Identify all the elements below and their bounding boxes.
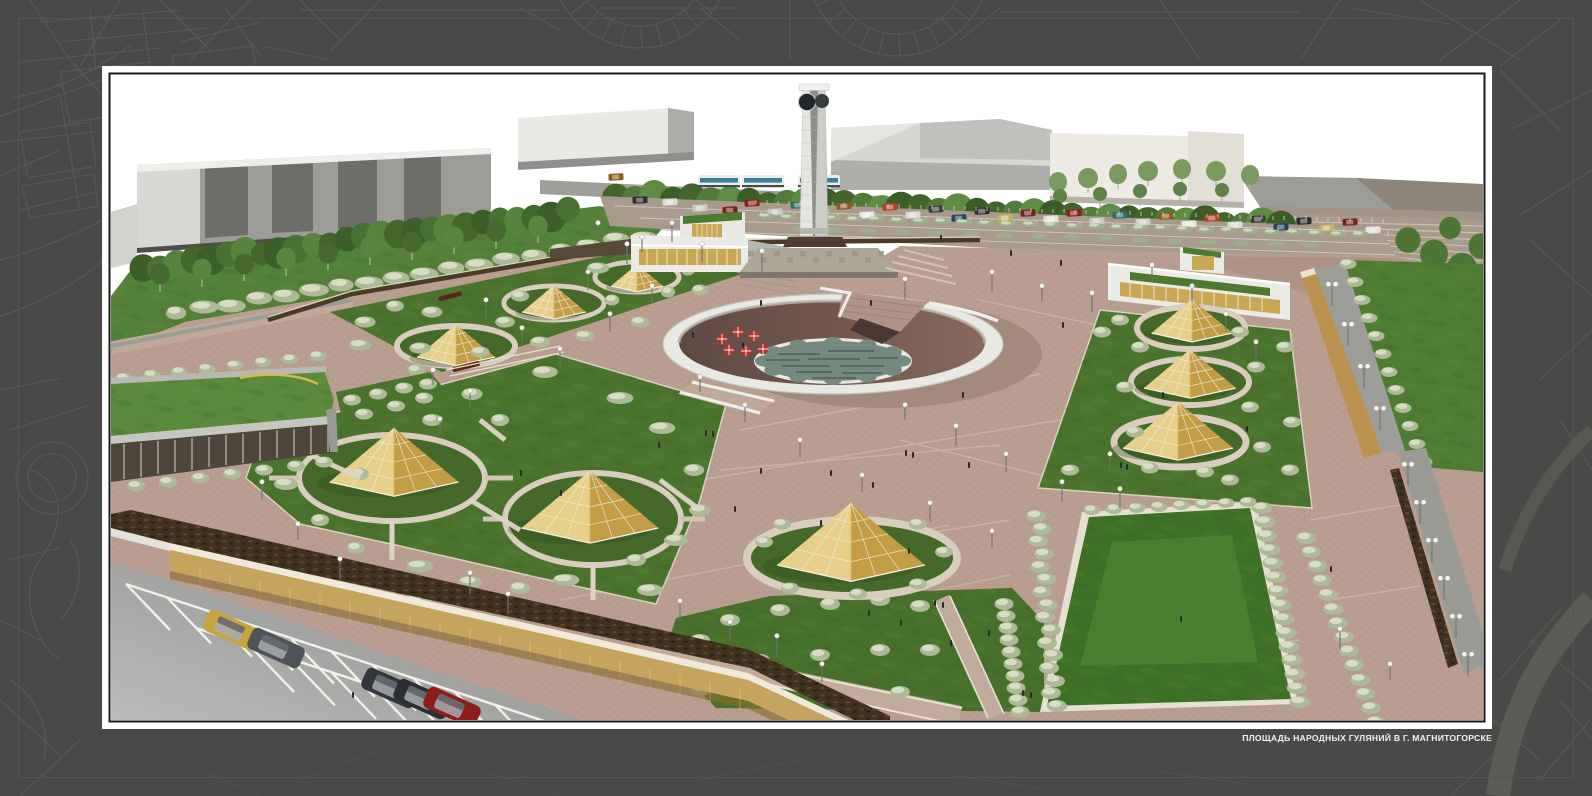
svg-text:ПЛОЩАДЬ НАРОДНЫХ ГУЛЯНИЙ В Г.: ПЛОЩАДЬ НАРОДНЫХ ГУЛЯНИЙ В Г. МАГНИТОГОР… <box>1242 732 1492 743</box>
